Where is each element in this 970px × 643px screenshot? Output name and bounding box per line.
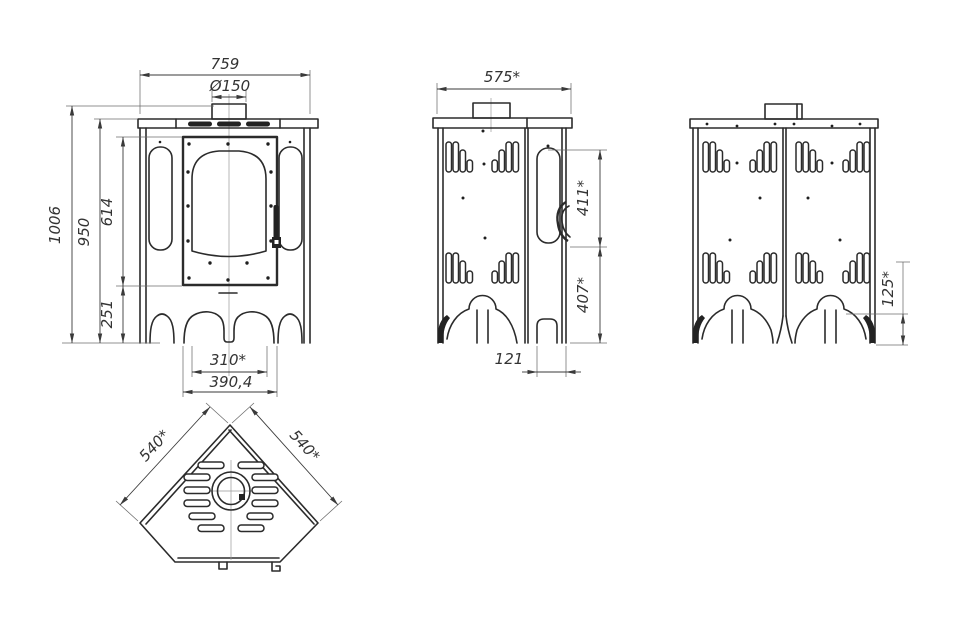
top-view: 540* 540* [116,403,342,571]
dim-top-right-side: 540* [286,426,324,465]
dim-leg-zone: 251 [98,300,116,329]
front-top-vent-slots [188,122,270,127]
back-legs [693,296,875,344]
back-view: 125* [690,104,910,345]
dim-door-zone: 614 [98,198,116,227]
side-top-plate [433,118,572,128]
back-body [690,104,878,343]
top-feet-tabs [219,562,280,571]
dim-top-left-side: 540* [135,426,173,465]
dim-front-width: 759 [211,55,240,73]
door-rivets [186,142,272,281]
side-dimensions: 575* 411* 407* 121 [437,68,607,377]
stove-door [183,137,277,285]
front-body [138,94,318,376]
side-vent-slots-upper [446,142,519,172]
back-top-plate [690,119,878,128]
dim-flue-diameter: Ø150 [209,77,250,95]
top-outline-pentagon [140,425,318,562]
side-body [433,98,572,343]
side-legs [438,296,557,344]
dim-total-height: 1006 [46,206,64,244]
flue-notch [239,494,245,500]
dim-base-width: 390,4 [210,373,253,391]
front-view: 759 Ø150 1006 950 614 251 310* [46,55,318,397]
front-legs [150,312,302,343]
technical-drawing-sheet: 759 Ø150 1006 950 614 251 310* [0,0,970,643]
dim-body-height: 950 [75,218,93,247]
dim-arch-width: 310* [210,351,247,369]
dim-depth: 575* [484,68,521,86]
front-dimensions: 759 Ø150 1006 950 614 251 310* [46,55,310,397]
top-body [140,425,318,571]
side-flue-stub [473,103,510,118]
dim-upper-height: 411* [574,179,592,216]
dim-foot-offset: 121 [495,350,524,368]
dim-lower-height: 407* [574,276,592,313]
stove-drawing: 759 Ø150 1006 950 614 251 310* [0,0,970,643]
top-dimensions: 540* 540* [116,403,342,521]
front-right-recess [279,147,302,250]
side-vent-slots-lower [446,253,519,283]
side-view: 575* 411* 407* 121 [433,68,607,377]
side-front-recess [537,148,560,243]
front-left-recess [149,147,172,250]
dim-back-leg-height: 125* [879,270,897,307]
